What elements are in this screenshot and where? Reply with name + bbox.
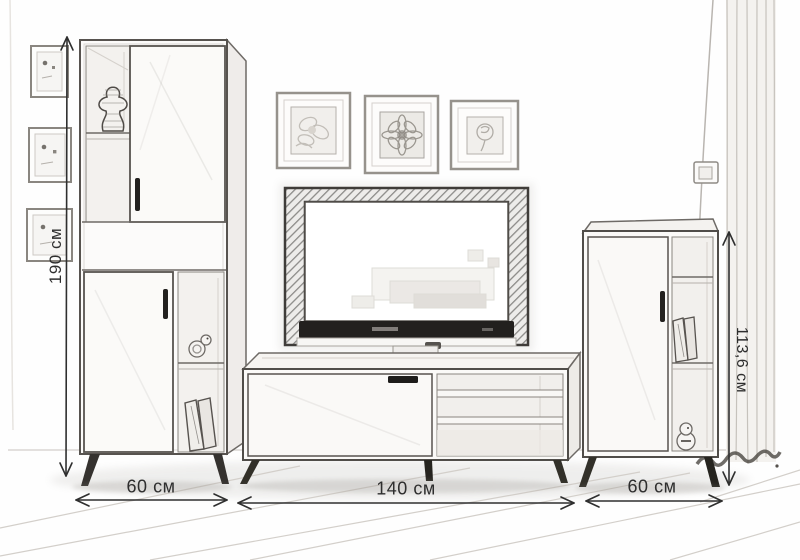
width-label-center: 140 см xyxy=(376,479,435,500)
gallery-art xyxy=(277,93,518,173)
gallery-picture-3 xyxy=(451,101,518,169)
tv-stand-door xyxy=(248,374,432,456)
height-label-right: 113,6 см xyxy=(732,327,750,393)
lower-door-handle xyxy=(163,289,168,319)
books-decor xyxy=(185,398,216,451)
low-cabinet-door xyxy=(588,237,668,451)
furniture-dimension-sketch: 190 см 113,6 см 60 см 140 см 60 см xyxy=(0,0,800,560)
tv-stand-side xyxy=(568,353,580,460)
tv xyxy=(279,183,534,366)
books-decor-right xyxy=(673,317,697,362)
tall-cabinet-lower-door xyxy=(84,272,173,452)
small-picture-1 xyxy=(31,46,68,97)
tall-cabinet-upper-shelf-column xyxy=(86,46,130,222)
toy-decor xyxy=(677,423,695,450)
light-switch xyxy=(694,162,718,183)
tv-stand-door-handle xyxy=(388,376,418,383)
low-cabinet-door-handle xyxy=(660,291,665,322)
low-cabinet xyxy=(575,219,725,494)
height-label-left: 190 см xyxy=(46,228,66,284)
upper-door-handle xyxy=(135,178,140,211)
gallery-picture-2 xyxy=(365,96,438,173)
tall-cabinet xyxy=(72,40,246,493)
tv-stand-shelves xyxy=(437,374,563,456)
small-picture-2 xyxy=(29,128,71,182)
tv-stand-top xyxy=(243,353,580,369)
width-label-left: 60 см xyxy=(127,477,176,498)
gallery-picture-1 xyxy=(277,93,350,168)
tall-cabinet-upper-door xyxy=(130,46,225,222)
width-label-right: 60 см xyxy=(628,477,677,498)
sketch-drawing xyxy=(0,0,800,560)
tv-bottom-bezel xyxy=(299,321,514,338)
